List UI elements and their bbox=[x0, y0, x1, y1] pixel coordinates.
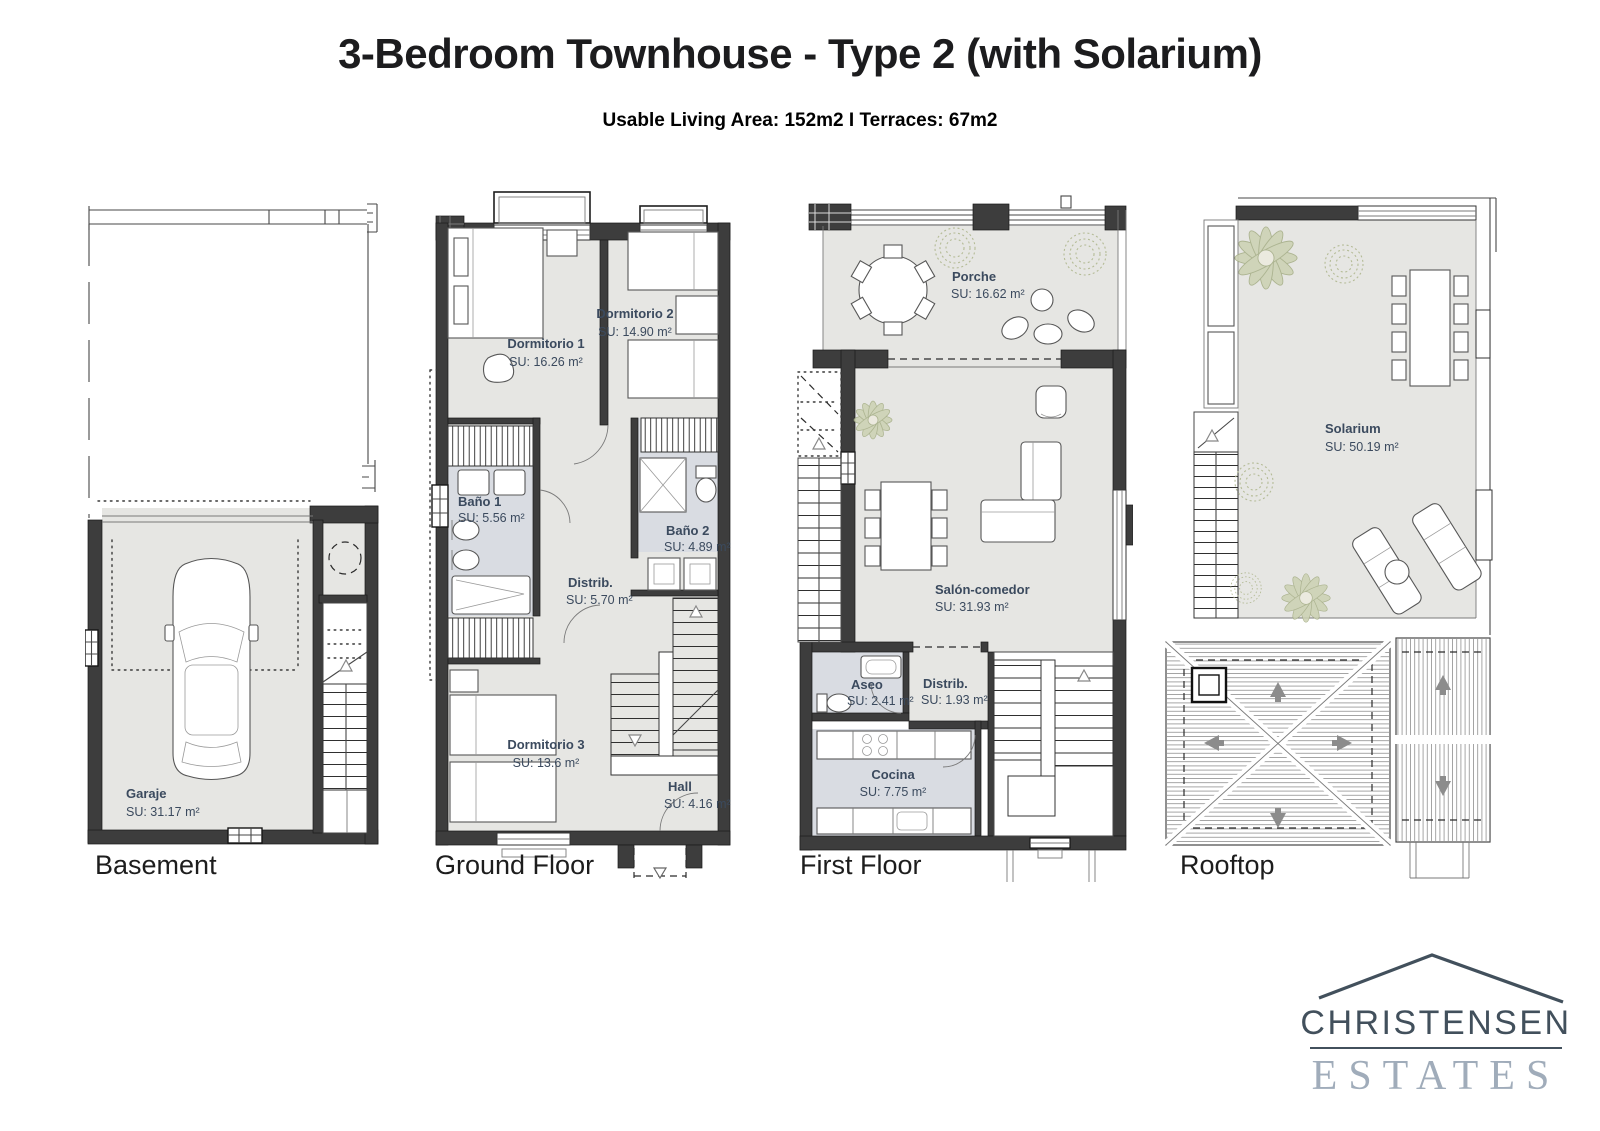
caption-rooftop: Rooftop bbox=[1180, 850, 1275, 881]
left-window-icon bbox=[432, 485, 448, 527]
label-dorm2-name: Dormitorio 2 bbox=[596, 306, 673, 321]
caption-basement: Basement bbox=[95, 850, 217, 881]
label-gdistrib-name: Distrib. bbox=[568, 575, 613, 590]
label-cocina-area: SU: 7.75 m² bbox=[860, 785, 927, 799]
label-solarium-name: Solarium bbox=[1325, 421, 1381, 436]
label-fdistrib-area: SU: 1.93 m² bbox=[921, 693, 988, 707]
label-dorm3-area: SU: 13.6 m² bbox=[513, 756, 580, 770]
hip-roof bbox=[1166, 642, 1390, 845]
label-bano2-name: Baño 2 bbox=[666, 523, 709, 538]
label-porche-area: SU: 16.62 m² bbox=[951, 287, 1025, 301]
caption-first: First Floor bbox=[800, 850, 922, 881]
first-floor-plan: Porche SU: 16.62 m² Salón-comedor SU: 31… bbox=[793, 190, 1133, 890]
logo-roof-icon bbox=[1281, 942, 1591, 1004]
balconies bbox=[494, 192, 707, 223]
label-salon-area: SU: 31.93 m² bbox=[935, 600, 1009, 614]
label-dorm2-area: SU: 14.90 m² bbox=[598, 325, 672, 339]
label-bano1-name: Baño 1 bbox=[458, 494, 501, 509]
label-garaje-name: Garaje bbox=[126, 786, 166, 801]
label-gdistrib-area: SU: 5.70 m² bbox=[566, 593, 633, 607]
car-icon bbox=[165, 559, 258, 780]
logo-name: CHRISTENSEN bbox=[1280, 1004, 1592, 1043]
brand-logo: CHRISTENSEN ESTATES bbox=[1280, 942, 1592, 1100]
logo-divider bbox=[1310, 1047, 1562, 1049]
label-dorm3-name: Dormitorio 3 bbox=[507, 737, 584, 752]
ground-floor-plan: Dormitorio 1 SU: 16.26 m² Dormitorio 2 S… bbox=[428, 190, 740, 890]
label-dorm1-area: SU: 16.26 m² bbox=[509, 355, 583, 369]
label-salon-name: Salón-comedor bbox=[935, 582, 1030, 597]
label-fdistrib-name: Distrib. bbox=[923, 676, 968, 691]
page-subtitle: Usable Living Area: 152m2 I Terraces: 67… bbox=[0, 110, 1600, 132]
basement-stairs-icon bbox=[323, 603, 367, 833]
label-aseo-name: Aseo bbox=[851, 677, 883, 692]
label-bano1-area: SU: 5.56 m² bbox=[458, 511, 525, 525]
label-solarium-area: SU: 50.19 m² bbox=[1325, 440, 1399, 454]
label-cocina-name: Cocina bbox=[871, 767, 915, 782]
stair-corridor bbox=[1194, 220, 1238, 618]
basement-plan: Garaje SU: 31.17 m² bbox=[85, 200, 397, 850]
label-garaje-area: SU: 31.17 m² bbox=[126, 805, 200, 819]
label-hall-area: SU: 4.16 m² bbox=[664, 797, 731, 811]
page-title: 3-Bedroom Townhouse - Type 2 (with Solar… bbox=[0, 30, 1600, 78]
label-hall-name: Hall bbox=[668, 779, 692, 794]
label-bano2-area: SU: 4.89 m² bbox=[664, 540, 731, 554]
exterior-stairs-icon bbox=[798, 372, 841, 642]
logo-subname: ESTATES bbox=[1280, 1052, 1592, 1100]
first-stairs-icon bbox=[994, 652, 1113, 836]
rooftop-plan: Solarium SU: 50.19 m² bbox=[1158, 190, 1503, 902]
shed-roof bbox=[1394, 638, 1492, 878]
floorplan-sheet: 3-Bedroom Townhouse - Type 2 (with Solar… bbox=[0, 0, 1600, 1131]
caption-ground: Ground Floor bbox=[435, 850, 594, 881]
label-aseo-area: SU: 2.41 m² bbox=[847, 694, 914, 708]
label-porche-name: Porche bbox=[952, 269, 996, 284]
plot-boundary bbox=[89, 204, 377, 518]
label-dorm1-name: Dormitorio 1 bbox=[507, 336, 584, 351]
